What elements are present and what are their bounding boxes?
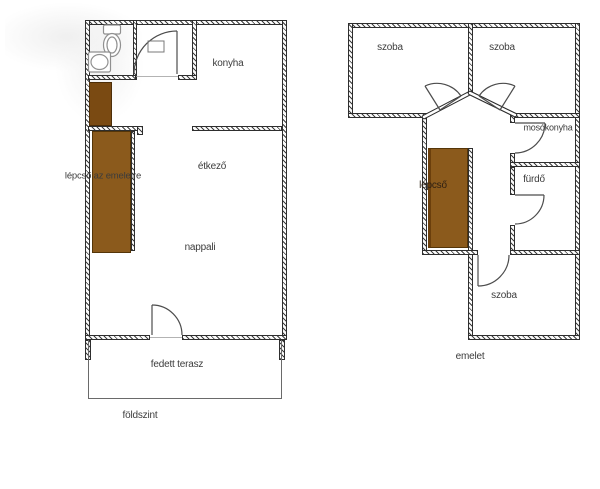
wall-segment bbox=[510, 162, 580, 167]
room-label-laundry: mosókonyha bbox=[523, 124, 572, 133]
partition-wall bbox=[470, 93, 515, 115]
wall-segment bbox=[468, 335, 580, 340]
room-label-stairs-ground: lépcső az emeletre bbox=[65, 171, 141, 181]
stairs-ground-main-run bbox=[92, 131, 131, 253]
door-swing-arc bbox=[134, 31, 177, 74]
wall-segment bbox=[88, 75, 136, 80]
stairs-ground-upper-run bbox=[89, 82, 112, 126]
wall-segment bbox=[468, 148, 473, 340]
room-label-stairs-upper: lépcső bbox=[419, 181, 447, 191]
sink-icon bbox=[89, 52, 111, 72]
room-label-room-top-right: szoba bbox=[489, 43, 515, 53]
room-label-bathroom: fürdő bbox=[523, 175, 545, 185]
partition-wall bbox=[424, 93, 470, 117]
wall-segment bbox=[348, 23, 353, 118]
wall-segment bbox=[178, 75, 197, 80]
door-swing-arc bbox=[515, 195, 544, 224]
wall-segment bbox=[282, 20, 287, 340]
door-leaf bbox=[500, 86, 515, 110]
cabinet-outline bbox=[148, 41, 164, 52]
wall-segment bbox=[468, 23, 473, 95]
wall-segment bbox=[348, 113, 427, 118]
partition-wall bbox=[424, 93, 470, 117]
watermark-smudge bbox=[5, 2, 145, 72]
wall-segment bbox=[192, 126, 282, 131]
wall-segment bbox=[510, 167, 515, 195]
stairs-upper-run bbox=[428, 148, 468, 248]
wall-segment bbox=[192, 20, 197, 80]
sink-icon bbox=[91, 55, 108, 70]
wall-segment bbox=[348, 23, 580, 28]
floor-caption-ground: földszint bbox=[123, 411, 158, 421]
room-label-living: nappali bbox=[185, 243, 216, 253]
door-swing-arc bbox=[152, 305, 182, 335]
door-leaf bbox=[440, 96, 461, 110]
door-swing-arc bbox=[478, 255, 509, 286]
wall-segment bbox=[85, 20, 287, 25]
wall-segment bbox=[575, 23, 580, 340]
door-leaf bbox=[479, 96, 500, 110]
room-label-room-top-left: szoba bbox=[377, 43, 403, 53]
wall-segment bbox=[133, 20, 137, 80]
wall-segment bbox=[131, 131, 135, 251]
toilet-icon bbox=[104, 25, 121, 34]
floor-plan-canvas: konyha étkező lépcső az emeletre nappali… bbox=[0, 0, 600, 489]
room-label-room-bottom: szoba bbox=[491, 291, 517, 301]
toilet-icon bbox=[107, 37, 117, 53]
room-label-kitchen: konyha bbox=[212, 59, 243, 69]
wall-segment bbox=[137, 126, 143, 135]
toilet-icon bbox=[104, 34, 121, 57]
wall-segment bbox=[511, 113, 580, 118]
door-swing-arc bbox=[425, 83, 461, 96]
wall-segment bbox=[510, 250, 580, 255]
wall-segment bbox=[510, 113, 515, 123]
door-leaf bbox=[425, 86, 440, 110]
floor-caption-upper: emelet bbox=[456, 352, 485, 362]
room-label-dining: étkező bbox=[198, 162, 226, 172]
partition-wall bbox=[470, 93, 515, 115]
room-label-terrace: fedett terasz bbox=[151, 360, 203, 370]
door-swing-arc bbox=[479, 83, 515, 96]
wall-segment bbox=[422, 250, 478, 255]
